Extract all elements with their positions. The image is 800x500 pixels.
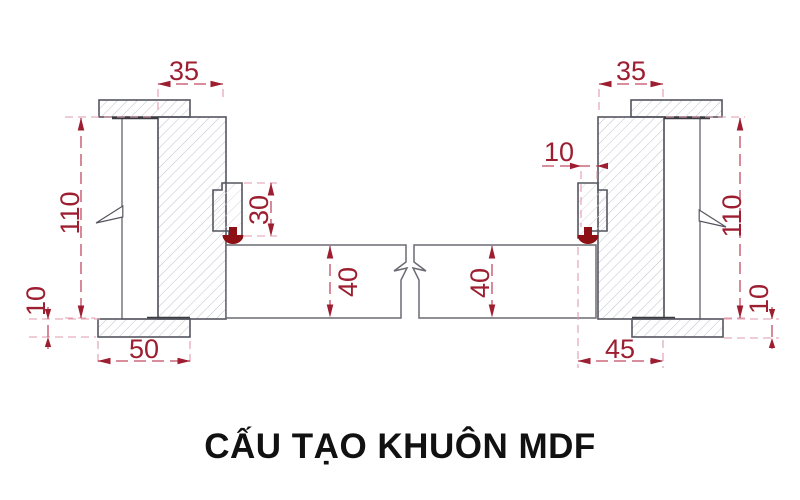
dim-right-stop-width-label: 10	[544, 137, 574, 167]
dim-left-casing-width-label: 50	[129, 334, 159, 364]
left-door-stop	[213, 183, 242, 238]
right-frame-assembly	[578, 100, 727, 337]
right-bottom-architrave	[632, 319, 723, 337]
dim-left-stop-depth: 30	[244, 183, 277, 236]
dim-left-casing-width: 50	[98, 334, 190, 367]
dim-right-casing-thickness-label: 10	[744, 284, 774, 314]
left-masonry-wall-strip	[122, 117, 158, 319]
left-wall-break-mark	[96, 206, 123, 223]
dim-left-casing-thickness-label: 10	[21, 286, 51, 316]
diagram-title: CẤU TẠO KHUÔN MDF	[204, 426, 596, 466]
dim-left-frame-height-label: 110	[55, 191, 85, 234]
dim-left-casing-thickness: 10	[21, 286, 100, 349]
right-masonry-wall-strip	[664, 117, 700, 319]
right-jamb-profile	[598, 117, 664, 319]
dim-right-jamb-width-label: 35	[616, 56, 646, 86]
dim-right-panel-thickness-label: 40	[465, 268, 495, 298]
mdf-frame-cross-section-diagram: 35 110 10 50 30 40 10	[0, 0, 800, 500]
door-panel-left-half	[226, 245, 407, 318]
dim-right-casing-width-label: 45	[605, 334, 635, 364]
right-top-architrave	[631, 100, 722, 117]
dim-right-frame-height-label: 110	[717, 194, 747, 237]
left-frame-assembly	[96, 100, 244, 337]
door-panel-right-half	[413, 245, 596, 318]
left-top-architrave	[99, 100, 190, 117]
dim-left-jamb-width-label: 35	[169, 56, 199, 86]
right-door-stop	[578, 183, 607, 238]
dim-right-casing-thickness: 10	[724, 284, 779, 349]
dim-left-stop-depth-label: 30	[244, 195, 274, 225]
dim-left-panel-thickness-label: 40	[333, 267, 363, 297]
